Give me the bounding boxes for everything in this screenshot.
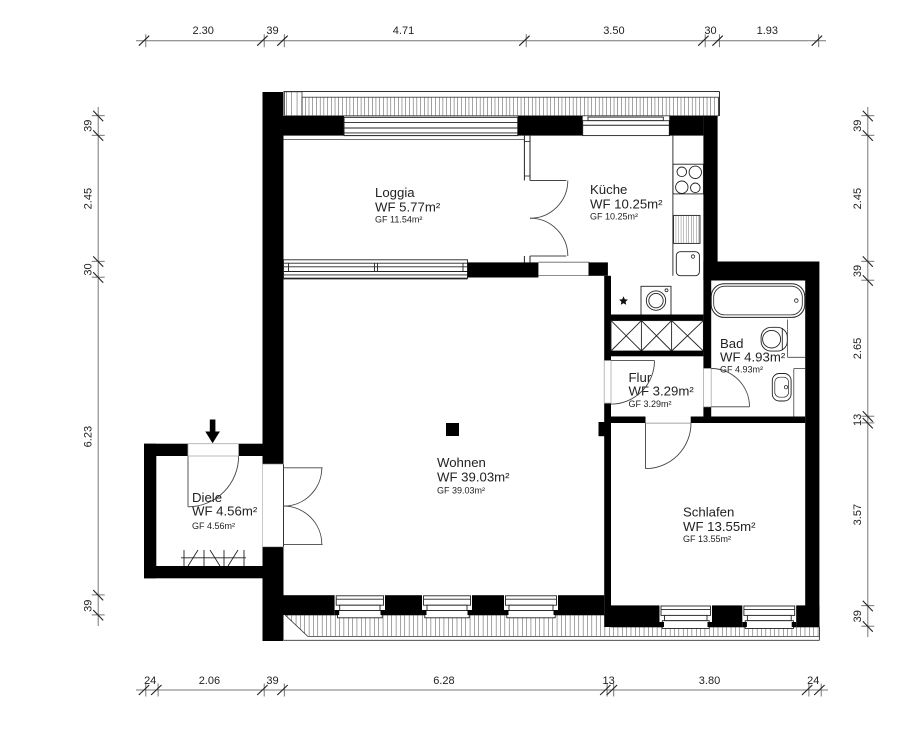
svg-text:39: 39 [852, 610, 864, 622]
svg-text:GF 10.25m²: GF 10.25m² [590, 212, 638, 222]
svg-text:2.45: 2.45 [83, 188, 95, 209]
svg-text:3.57: 3.57 [852, 504, 864, 525]
svg-text:30: 30 [704, 25, 716, 37]
svg-text:30: 30 [83, 263, 95, 275]
svg-text:39: 39 [83, 600, 95, 612]
svg-text:2.65: 2.65 [852, 338, 864, 359]
svg-text:39: 39 [852, 265, 864, 277]
svg-text:Schlafen: Schlafen [683, 505, 734, 520]
svg-text:WF 3.29m²: WF 3.29m² [629, 384, 695, 399]
svg-text:GF 4.56m²: GF 4.56m² [192, 521, 235, 531]
svg-text:GF 13.55m²: GF 13.55m² [683, 534, 731, 544]
svg-text:4.71: 4.71 [393, 25, 414, 37]
svg-text:6.23: 6.23 [83, 426, 95, 447]
svg-text:3.50: 3.50 [603, 25, 624, 37]
svg-text:WF 4.56m²: WF 4.56m² [192, 504, 258, 519]
svg-text:Küche: Küche [590, 182, 627, 197]
svg-text:GF 11.54m²: GF 11.54m² [375, 215, 422, 225]
svg-text:Wohnen: Wohnen [437, 455, 486, 470]
svg-text:WF 4.93m²: WF 4.93m² [720, 350, 786, 365]
svg-text:1.93: 1.93 [757, 25, 778, 37]
svg-text:WF 5.77m²: WF 5.77m² [375, 200, 441, 215]
svg-text:3.80: 3.80 [699, 675, 720, 687]
svg-text:39: 39 [83, 120, 95, 132]
svg-text:WF 39.03m²: WF 39.03m² [437, 470, 510, 485]
svg-text:GF 3.29m²: GF 3.29m² [629, 399, 672, 409]
svg-text:39: 39 [266, 675, 278, 687]
svg-text:39: 39 [266, 25, 278, 37]
svg-text:13: 13 [602, 675, 614, 687]
svg-text:Loggia: Loggia [375, 185, 415, 200]
svg-text:2.45: 2.45 [852, 188, 864, 209]
svg-text:39: 39 [852, 120, 864, 132]
svg-text:GF 39.03m²: GF 39.03m² [437, 486, 485, 496]
svg-text:WF 10.25m²: WF 10.25m² [590, 197, 663, 212]
svg-text:6.28: 6.28 [433, 675, 454, 687]
svg-text:WF 13.55m²: WF 13.55m² [683, 519, 756, 534]
svg-text:GF 4.93m²: GF 4.93m² [720, 365, 763, 375]
svg-text:2.30: 2.30 [192, 25, 213, 37]
svg-text:2.06: 2.06 [199, 675, 220, 687]
svg-text:13: 13 [852, 414, 864, 426]
svg-text:24: 24 [807, 675, 819, 687]
svg-text:24: 24 [144, 675, 156, 687]
